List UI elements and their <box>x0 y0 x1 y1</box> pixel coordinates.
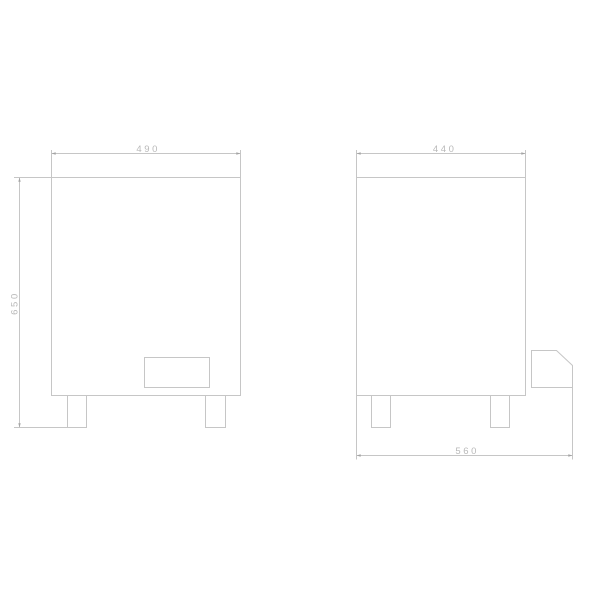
svg-text:650: 650 <box>10 291 21 315</box>
svg-text:440: 440 <box>433 144 457 155</box>
svg-text:560: 560 <box>455 446 479 457</box>
svg-text:490: 490 <box>136 144 160 155</box>
